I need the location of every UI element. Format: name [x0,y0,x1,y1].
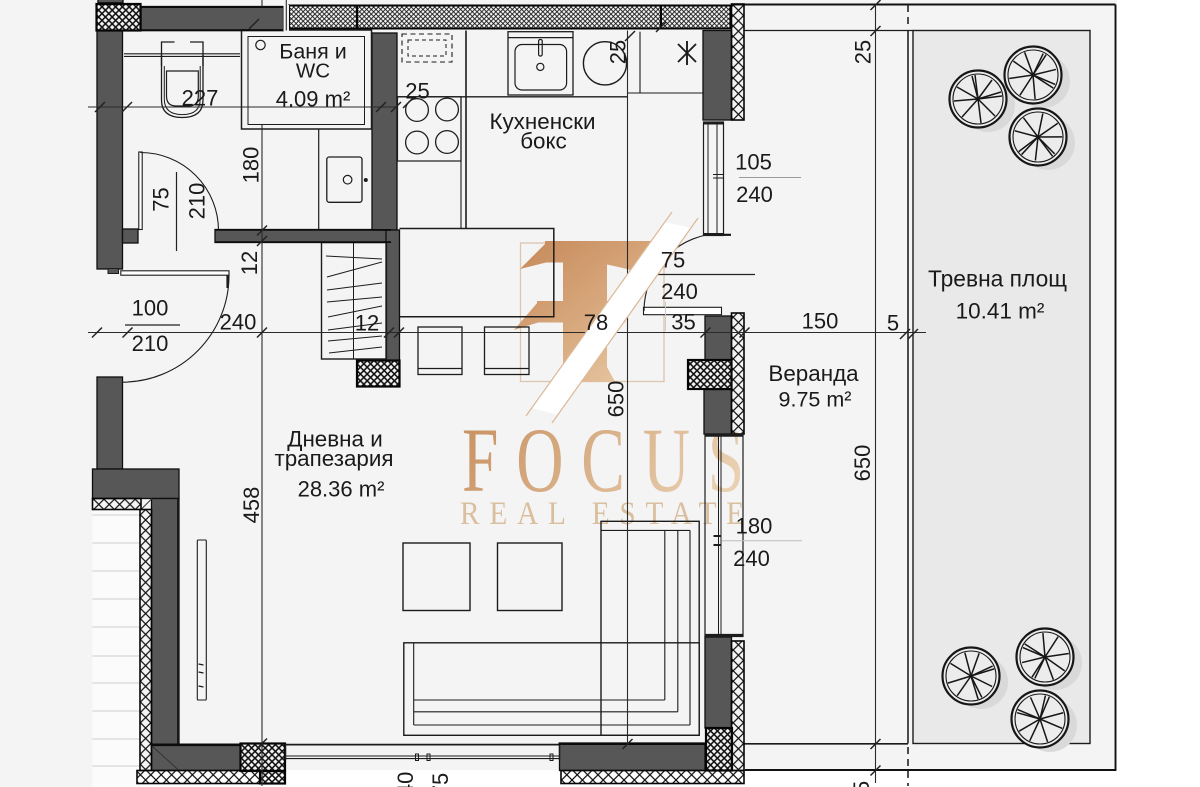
svg-text:25: 25 [405,79,429,104]
svg-text:227: 227 [182,86,219,111]
svg-text:240: 240 [736,182,773,207]
svg-text:25: 25 [849,781,874,787]
svg-text:150: 150 [802,309,839,334]
svg-text:4.09 m²: 4.09 m² [276,86,351,111]
svg-text:бокс: бокс [520,129,567,154]
svg-text:180: 180 [736,514,773,539]
svg-text:5: 5 [887,311,899,336]
svg-text:210: 210 [185,183,210,220]
svg-text:210: 210 [132,331,169,356]
svg-text:Веранда: Веранда [768,361,859,386]
svg-text:28.36 m²: 28.36 m² [298,477,385,502]
svg-text:трапезария: трапезария [274,446,393,471]
svg-text:75: 75 [428,773,453,787]
svg-text:105: 105 [735,150,772,175]
svg-text:10.41 m²: 10.41 m² [956,299,1045,324]
svg-text:12: 12 [355,311,379,336]
svg-text:12: 12 [237,251,262,275]
svg-text:Тревна площ: Тревна площ [928,266,1067,292]
svg-text:9.75 m²: 9.75 m² [779,388,852,412]
svg-text:650: 650 [604,381,629,418]
svg-text:35: 35 [671,310,695,335]
svg-text:458: 458 [239,487,264,524]
svg-text:240: 240 [393,772,418,787]
svg-text:240: 240 [220,310,257,335]
svg-text:650: 650 [850,445,875,482]
svg-text:25: 25 [851,40,876,64]
svg-text:78: 78 [584,310,608,335]
svg-text:240: 240 [733,546,770,571]
svg-text:240: 240 [661,279,698,304]
svg-text:75: 75 [661,248,685,273]
svg-text:REAL ESTATE: REAL ESTATE [460,496,754,532]
svg-text:75: 75 [149,187,174,211]
svg-text:25: 25 [606,40,631,64]
svg-text:180: 180 [239,147,264,184]
svg-text:100: 100 [132,296,169,321]
svg-text:WC: WC [296,60,330,83]
